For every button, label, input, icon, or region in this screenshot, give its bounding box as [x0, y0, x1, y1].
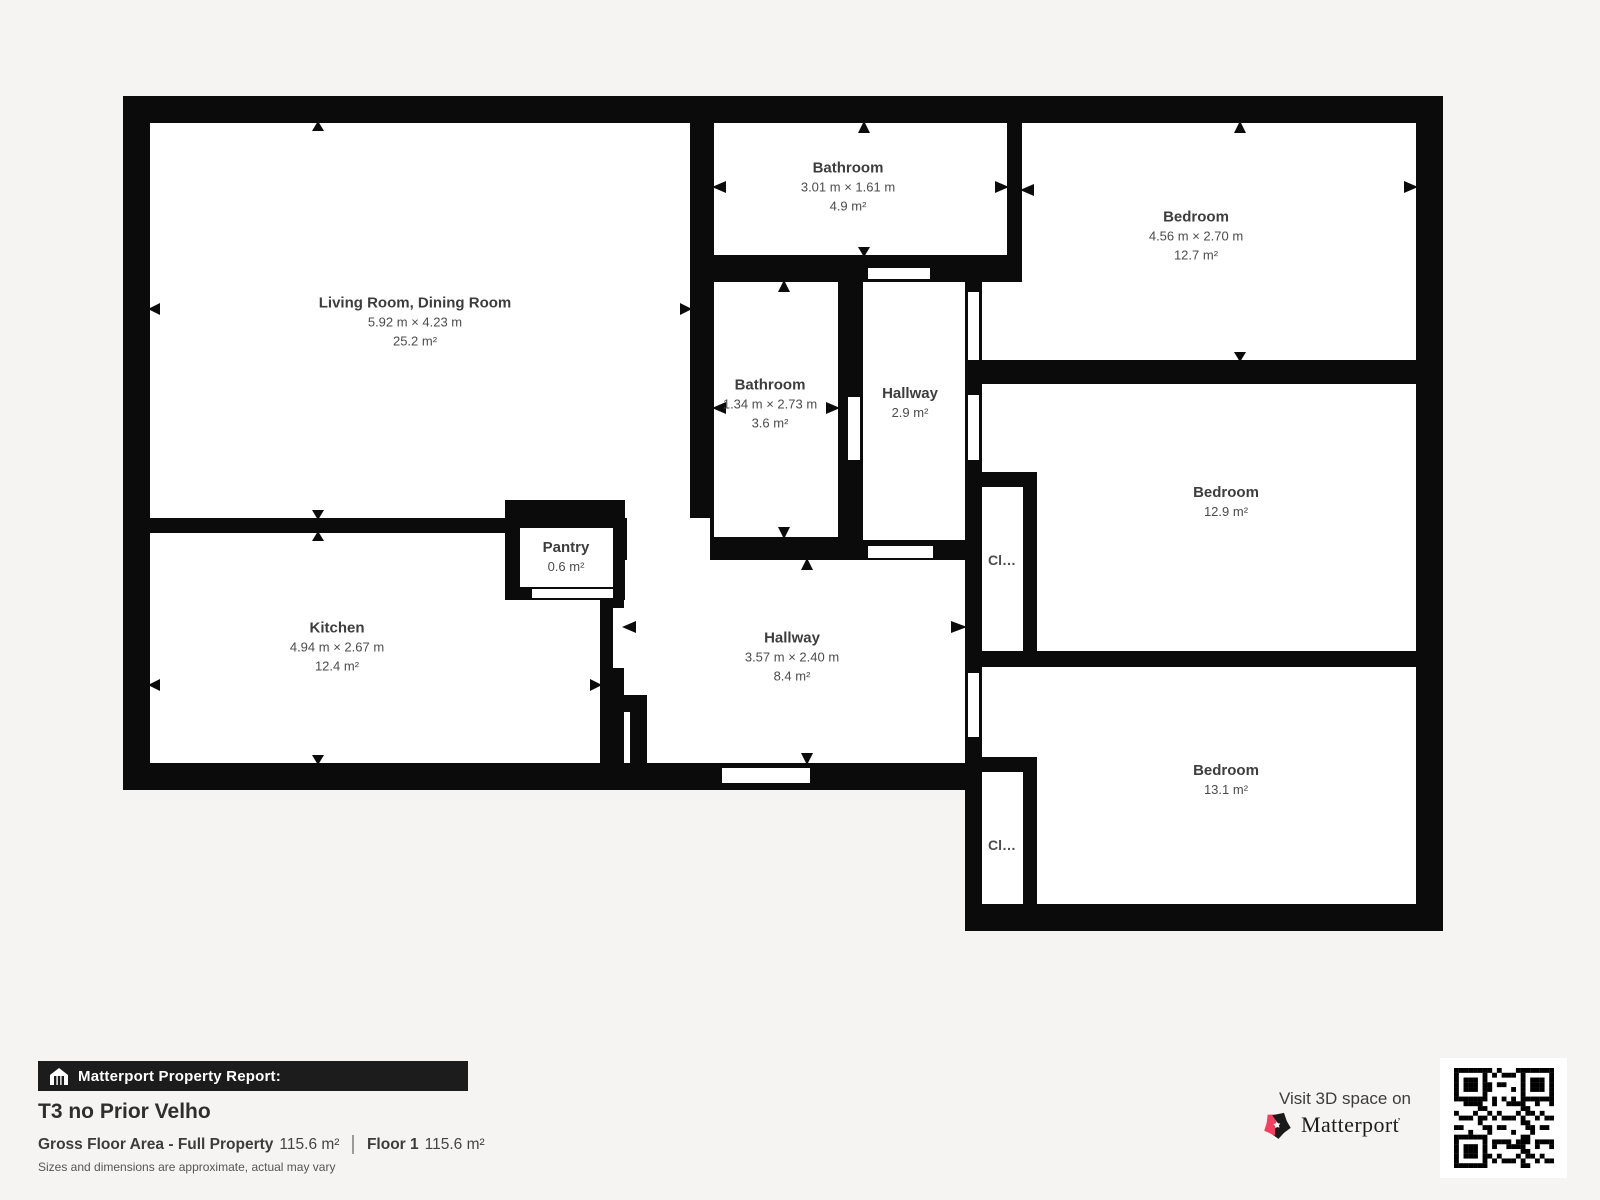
- area-stats: Gross Floor Area - Full Property 115.6 m…: [38, 1135, 485, 1154]
- room-label-hallway-small: Hallway 2.9 m²: [882, 384, 938, 422]
- gross-floor-area-value: 115.6 m²: [279, 1136, 339, 1154]
- room-label-living-dining: Living Room, Dining Room 5.92 m × 4.23 m…: [319, 294, 511, 351]
- visit-3d-label: Visit 3D space on: [1279, 1089, 1411, 1109]
- matterport-wordmark: Matterport: [1301, 1112, 1399, 1137]
- room-label-bedroom-mid: Bedroom 12.9 m²: [1193, 483, 1259, 521]
- floor1-label: Floor 1: [367, 1136, 419, 1154]
- gross-floor-area-label: Gross Floor Area - Full Property: [38, 1136, 273, 1154]
- closet-label-bottom: Cl…: [988, 837, 1016, 853]
- matterport-pinwheel-icon: [1261, 1109, 1293, 1141]
- property-title: T3 no Prior Velho: [38, 1100, 211, 1124]
- disclaimer-text: Sizes and dimensions are approximate, ac…: [38, 1160, 335, 1174]
- matterport-logo[interactable]: Matterportʼ: [1261, 1109, 1403, 1141]
- room-label-bathroom-top: Bathroom 3.01 m × 1.61 m 4.9 m²: [801, 159, 895, 216]
- report-banner-label: Matterport Property Report:: [78, 1068, 281, 1085]
- closet-label-mid: Cl…: [988, 552, 1016, 568]
- house-icon: [50, 1068, 68, 1085]
- room-label-kitchen: Kitchen 4.94 m × 2.67 m 12.4 m²: [290, 619, 384, 676]
- qr-pattern: [1454, 1068, 1554, 1168]
- stats-divider: [352, 1135, 354, 1154]
- room-label-bedroom-bottom: Bedroom 13.1 m²: [1193, 761, 1259, 799]
- page: Living Room, Dining Room 5.92 m × 4.23 m…: [0, 0, 1600, 1200]
- room-label-bedroom-top: Bedroom 4.56 m × 2.70 m 12.7 m²: [1149, 208, 1243, 265]
- room-label-pantry: Pantry 0.6 m²: [543, 538, 590, 576]
- trademark-tick: ʼ: [1397, 1116, 1401, 1128]
- room-label-hallway-main: Hallway 3.57 m × 2.40 m 8.4 m²: [745, 629, 839, 686]
- room-label-bathroom-mid: Bathroom 1.34 m × 2.73 m 3.6 m²: [723, 376, 817, 433]
- floor1-value: 115.6 m²: [425, 1136, 485, 1154]
- report-banner: Matterport Property Report:: [38, 1061, 468, 1091]
- qr-code[interactable]: [1440, 1058, 1567, 1178]
